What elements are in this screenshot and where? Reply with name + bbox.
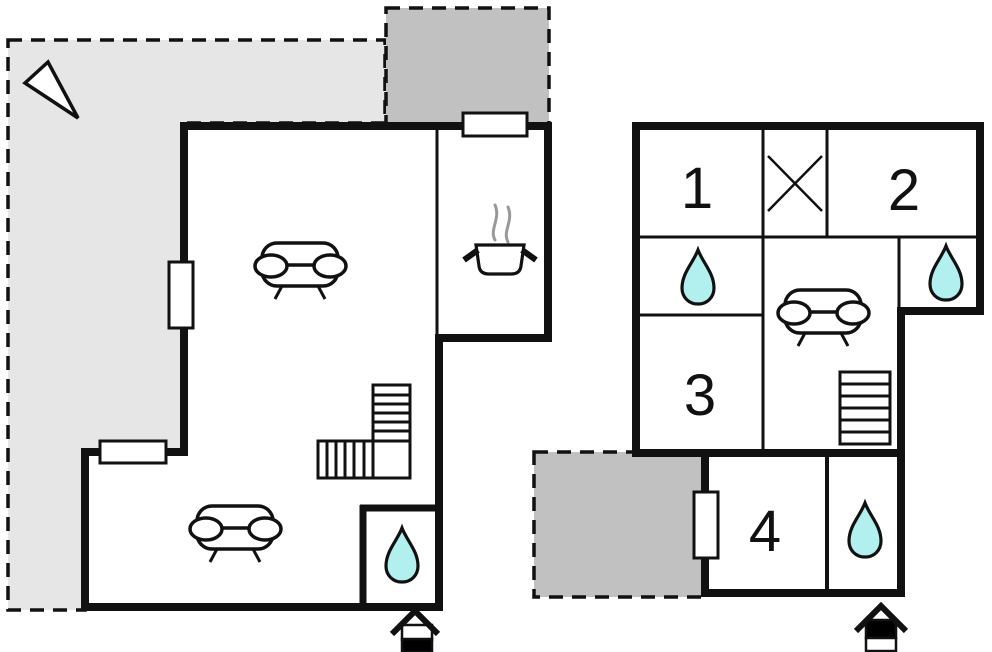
room-label-4: 4 bbox=[749, 499, 781, 564]
upper-floor-plan: 1 2 3 4 bbox=[534, 126, 980, 651]
window bbox=[463, 113, 527, 136]
window bbox=[694, 492, 718, 558]
entrance-icon bbox=[856, 606, 906, 651]
floor-plan-drawing: 1 2 3 4 bbox=[0, 0, 992, 652]
room-label-2: 2 bbox=[888, 158, 920, 223]
window bbox=[100, 441, 166, 463]
terrace-area bbox=[534, 452, 706, 597]
room-label-3: 3 bbox=[684, 363, 716, 428]
staircase-icon bbox=[840, 372, 890, 444]
room-label-1: 1 bbox=[681, 156, 713, 221]
ground-floor-plan bbox=[8, 8, 549, 652]
entrance-icon bbox=[392, 611, 438, 652]
window bbox=[169, 262, 193, 328]
roof-terrace-area bbox=[386, 8, 549, 124]
floor-plan-canvas: 1 2 3 4 bbox=[0, 0, 992, 652]
